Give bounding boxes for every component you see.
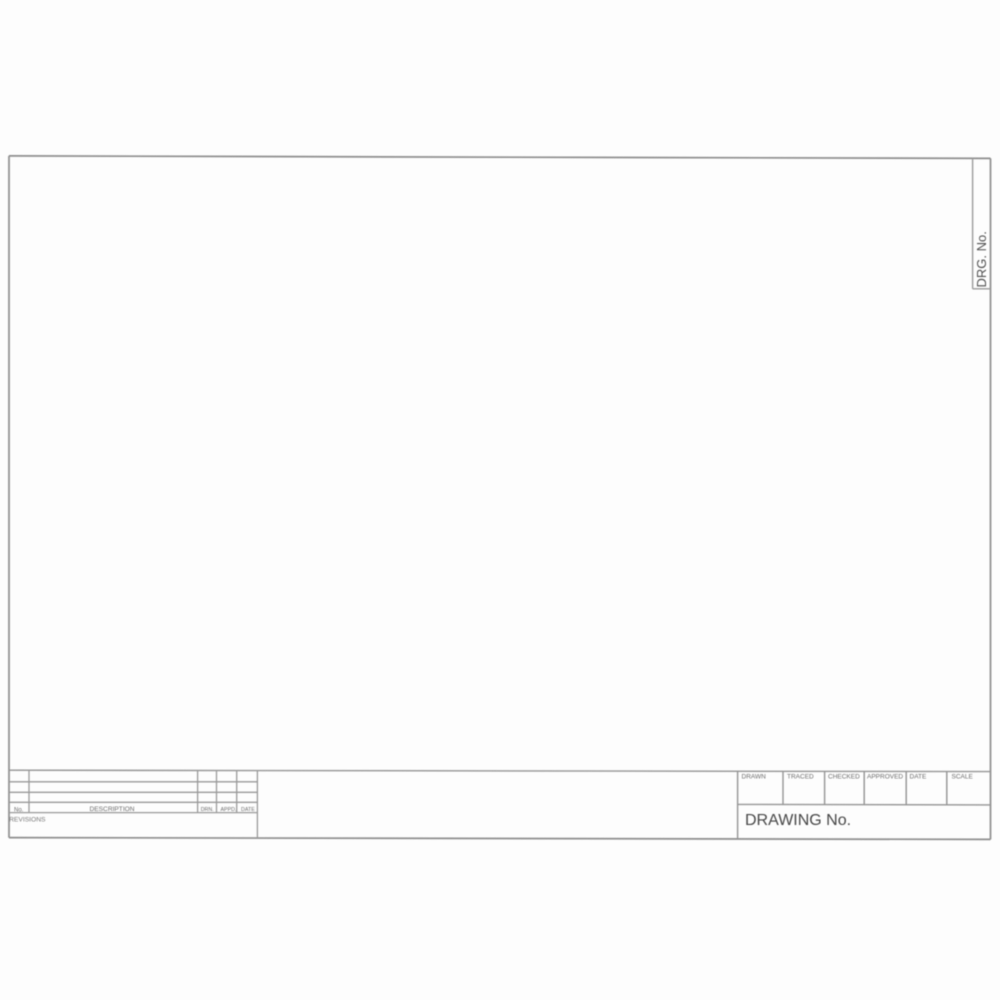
- svg-text:CHECKED: CHECKED: [828, 773, 860, 780]
- svg-text:REVISIONS: REVISIONS: [9, 817, 46, 824]
- svg-text:DRAWN: DRAWN: [742, 773, 767, 780]
- svg-text:DRG. No.: DRG. No.: [974, 231, 989, 287]
- svg-text:TRACED: TRACED: [787, 773, 814, 780]
- svg-text:No.: No.: [14, 807, 24, 813]
- svg-text:DRAWING No.: DRAWING No.: [745, 812, 851, 829]
- svg-text:DESCRIPTION: DESCRIPTION: [90, 806, 135, 813]
- svg-text:APPROVED: APPROVED: [867, 773, 903, 780]
- svg-text:DRN.: DRN.: [201, 807, 214, 813]
- svg-text:DATE: DATE: [241, 807, 255, 813]
- svg-text:APPD.: APPD.: [221, 807, 237, 813]
- svg-text:SCALE: SCALE: [952, 773, 974, 780]
- svg-text:DATE: DATE: [910, 773, 928, 780]
